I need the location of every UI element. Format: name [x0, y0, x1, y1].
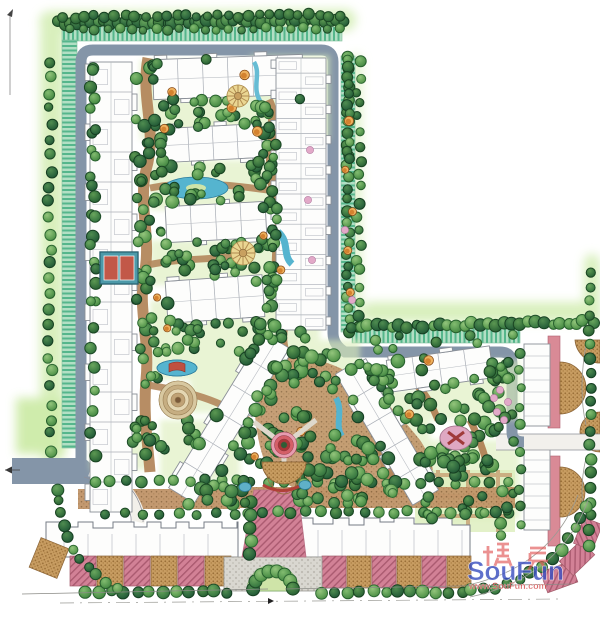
svg-text:www.SouFun.com: www.SouFun.com: [468, 581, 547, 591]
